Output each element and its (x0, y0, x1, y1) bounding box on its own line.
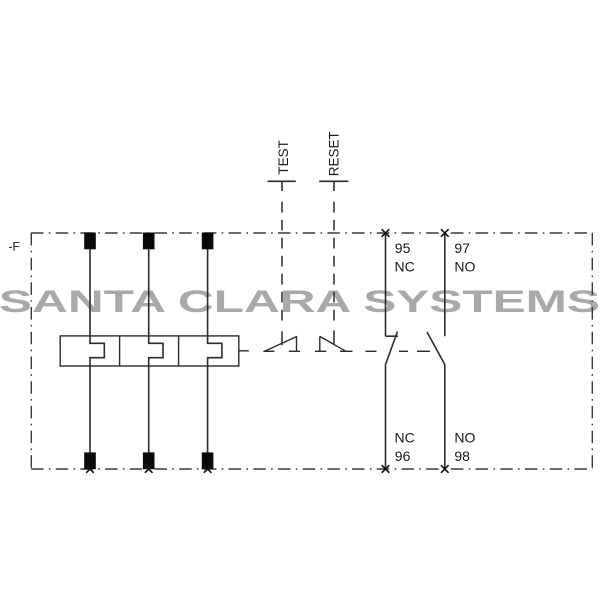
svg-text:97: 97 (454, 240, 470, 256)
svg-text:NO: NO (454, 259, 475, 275)
svg-text:95: 95 (395, 240, 411, 256)
svg-text:NC: NC (395, 259, 415, 275)
svg-text:98: 98 (454, 448, 470, 464)
svg-text:NO: NO (454, 430, 475, 446)
svg-text:96: 96 (395, 448, 411, 464)
svg-text:TEST: TEST (276, 140, 291, 175)
svg-text:NC: NC (395, 430, 415, 446)
svg-text:RESET: RESET (327, 131, 342, 176)
svg-text:-F: -F (9, 240, 20, 254)
